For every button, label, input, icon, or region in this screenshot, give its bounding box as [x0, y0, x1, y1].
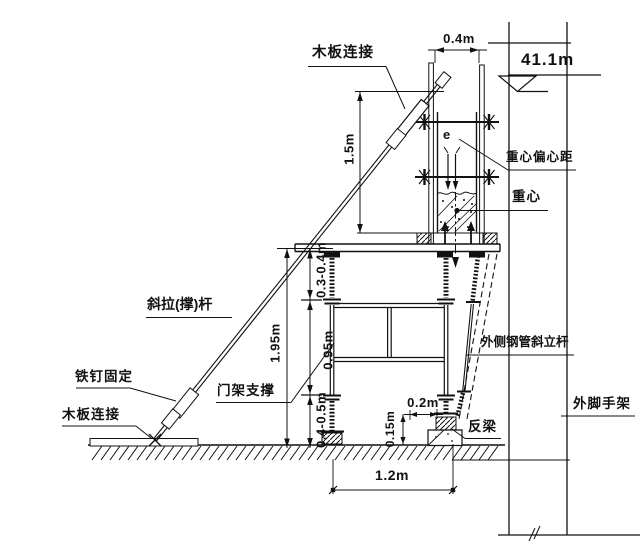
counter-beam-block: [436, 417, 456, 430]
label-gravity-center: 重心: [512, 190, 541, 204]
dim-top-clearance: 0.3-0.4m: [315, 242, 328, 298]
drawing-canvas: 木板连接 41.1m 0.4m e 重心偏心距 重心 斜拉(撑)杆 外侧钢管斜立…: [0, 0, 644, 550]
diagonal-brace: [154, 72, 451, 441]
leader-lines: [62, 67, 635, 439]
break-mark-icon: [529, 526, 540, 541]
wedge-block: [483, 233, 497, 244]
label-gravity-center-offset: 重心偏心距: [506, 151, 574, 164]
jack-tip-arrow-icon: [467, 221, 475, 231]
wedge-block: [417, 233, 431, 244]
elevation-symbol: [499, 75, 601, 92]
tie-rods: [415, 114, 499, 185]
label-board-connection-top: 木板连接: [312, 46, 374, 61]
label-nail-fix: 铁钉固定: [75, 370, 133, 384]
load-arrow-icon: [452, 257, 459, 268]
dim-upper-height: 1.5m: [343, 133, 356, 165]
dim-counter-beam-height: 0.15m: [384, 411, 396, 448]
right-support-column: [428, 258, 462, 446]
dim-total-height: 1.95m: [269, 323, 282, 362]
dim-top-width: 0.4m: [437, 32, 481, 45]
dim-counter-beam-width: 0.2m: [401, 396, 445, 409]
label-outer-steel-pipe-batter-post: 外侧钢管斜立杆: [481, 336, 569, 349]
label-gate-frame-support: 门架支撑: [217, 384, 275, 398]
dim-bottom-clearance: 0.4-0.5m: [315, 392, 328, 448]
label-counter-beam: 反梁: [468, 420, 497, 434]
dim-gate-frame-height: 0.95m: [322, 330, 335, 369]
label-eccentricity-e: e: [443, 128, 451, 141]
label-diagonal-brace: 斜拉(撑)杆: [147, 297, 212, 311]
outer-scaffold: [488, 22, 640, 541]
label-elevation-41-1m: 41.1m: [521, 51, 574, 68]
ground-board: [90, 439, 198, 447]
dim-base-span: 1.2m: [370, 468, 414, 482]
label-board-connection-bottom: 木板连接: [62, 408, 120, 422]
label-outer-scaffold: 外脚手架: [573, 397, 631, 411]
gate-frame: [334, 304, 444, 362]
brace-tip-cap: [435, 72, 451, 89]
